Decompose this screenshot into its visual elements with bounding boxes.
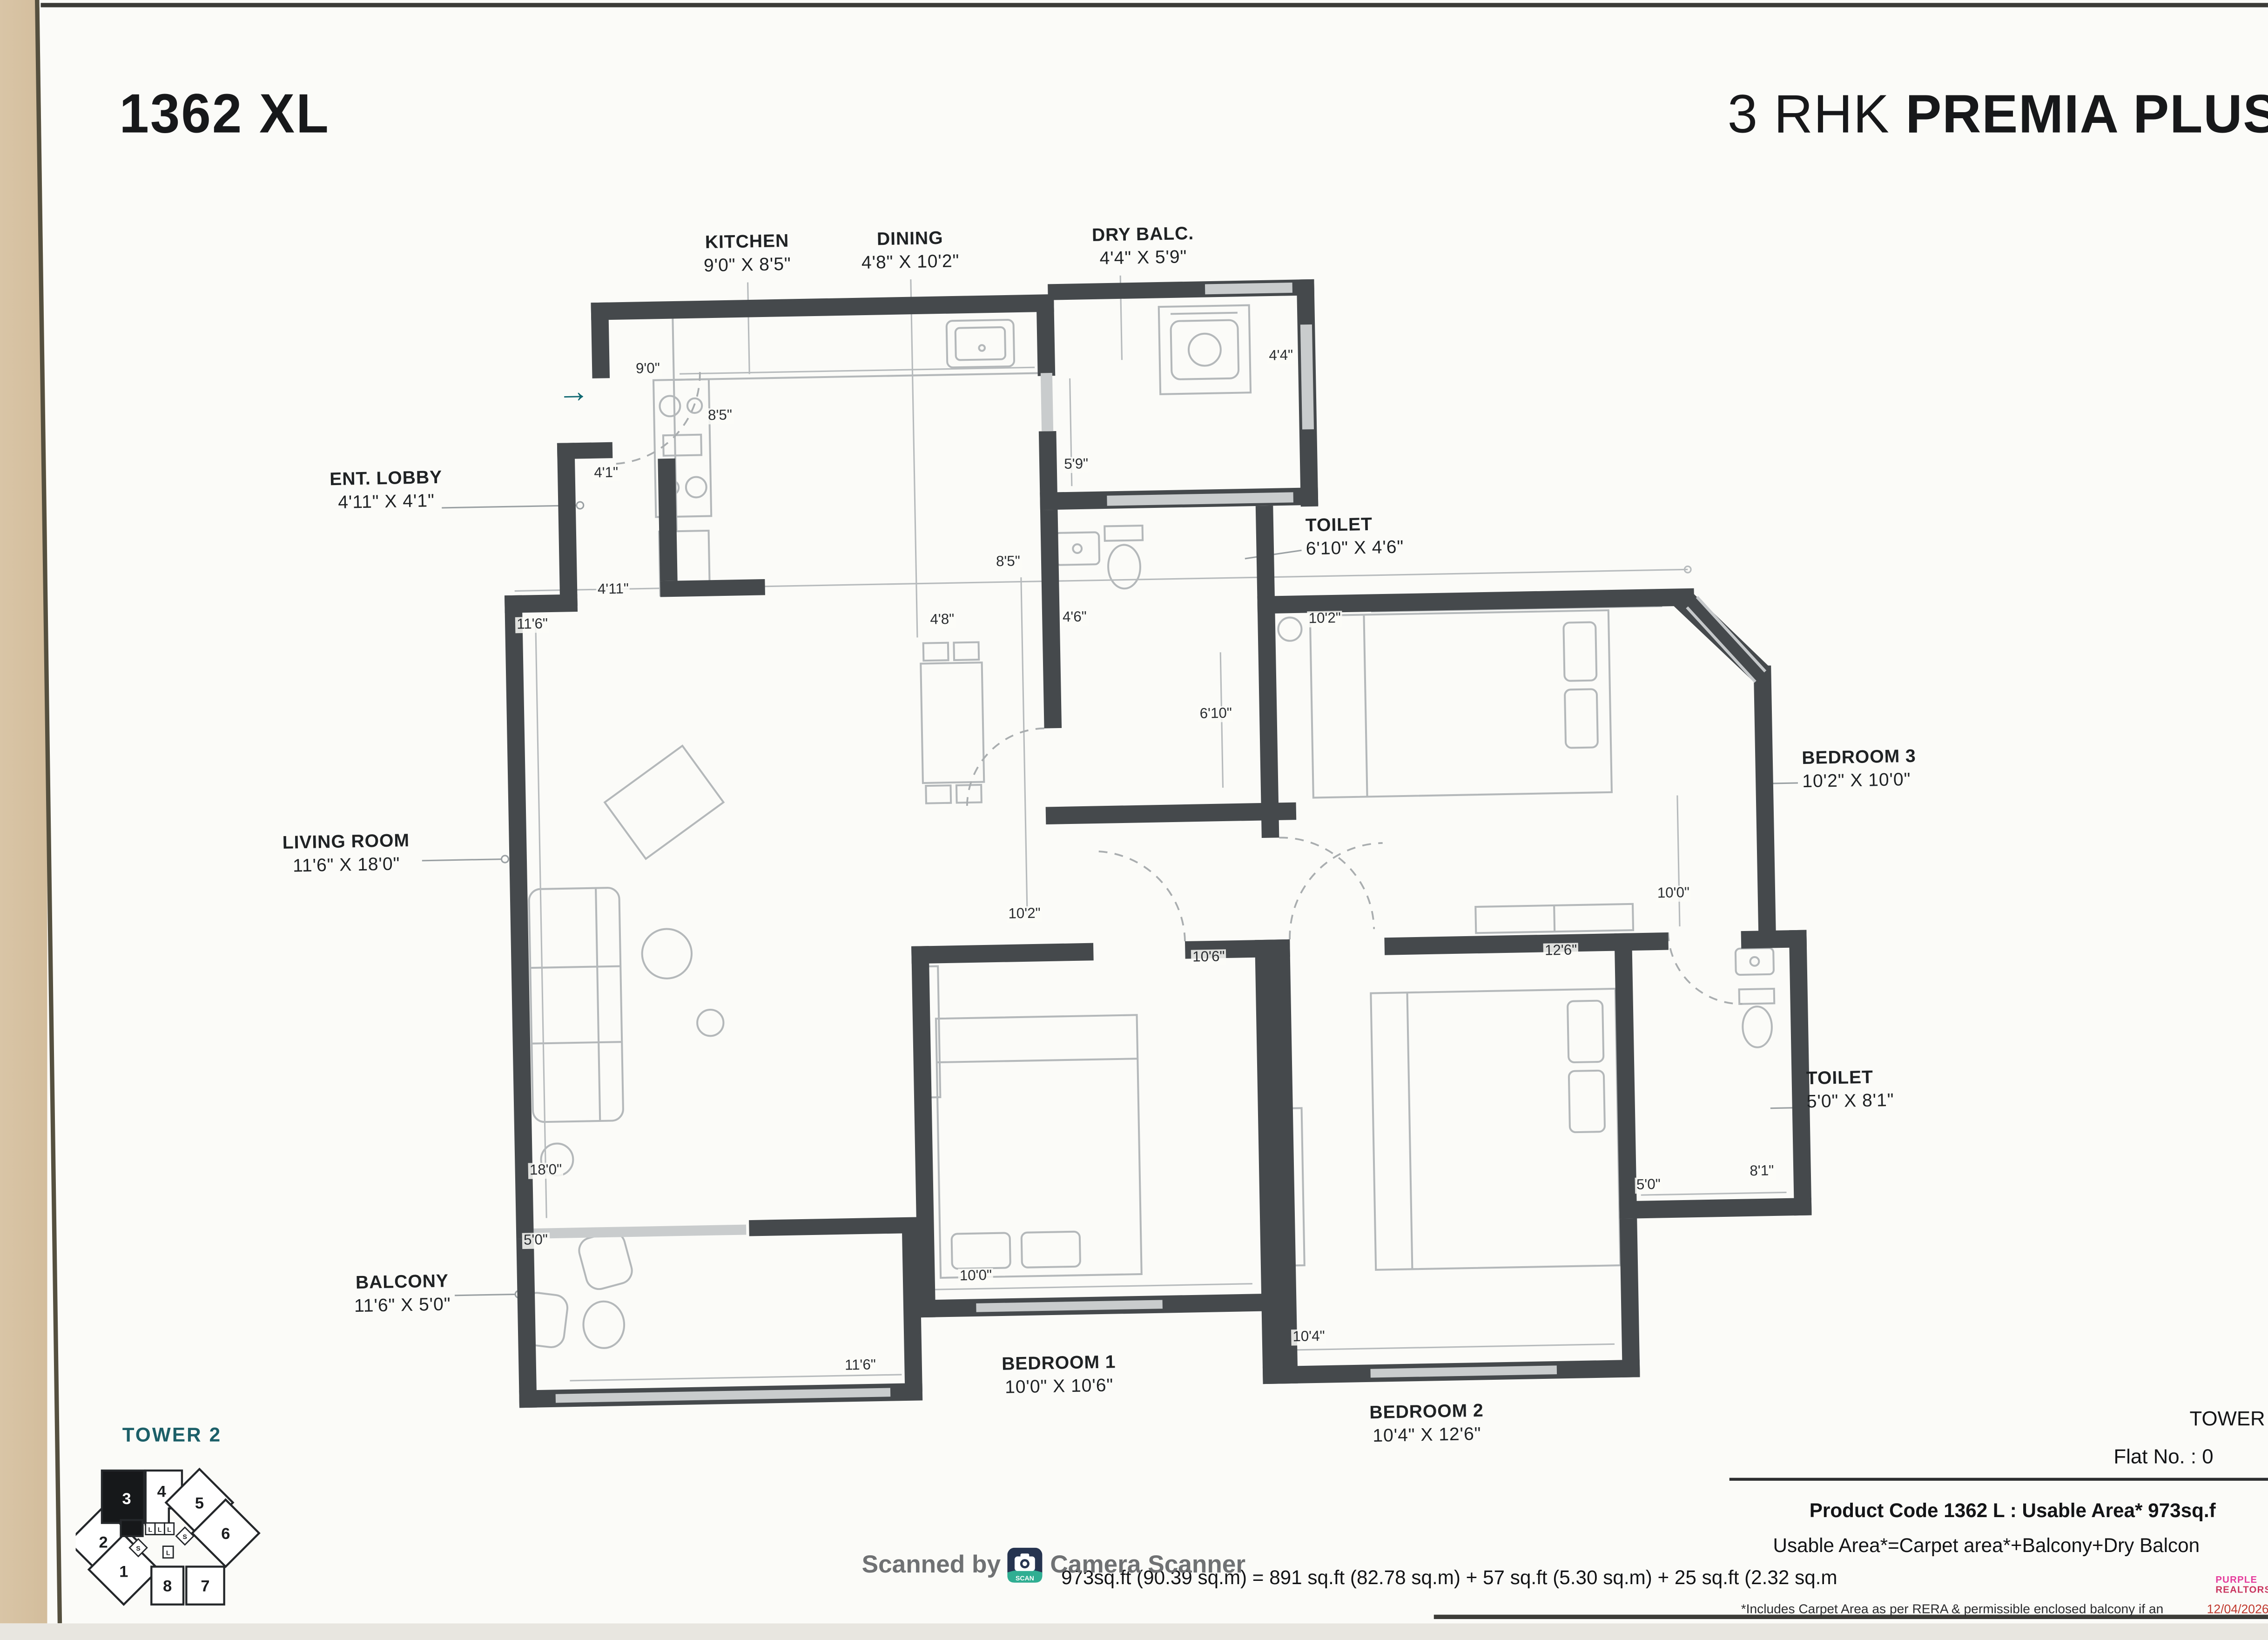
entry-arrow-icon: → bbox=[557, 372, 590, 411]
tv-console bbox=[605, 746, 723, 859]
dining-table bbox=[920, 642, 984, 803]
room-dims: 10'4" X 12'6" bbox=[1354, 1422, 1500, 1448]
dim-label: 10'4" bbox=[1291, 1329, 1326, 1346]
dim-label: 5'0" bbox=[522, 1233, 550, 1249]
keyplan-lift-label: L bbox=[167, 1525, 171, 1533]
keyplan-unit-number: 5 bbox=[195, 1494, 204, 1512]
balcony-table bbox=[583, 1301, 625, 1349]
dim-label: 4'11" bbox=[596, 581, 631, 598]
room-dims: 5'0" X 8'1" bbox=[1806, 1088, 1929, 1114]
wc-bowl bbox=[1108, 545, 1141, 589]
kitchen-slider bbox=[1041, 373, 1053, 432]
bedroom2-door-arc bbox=[1288, 843, 1384, 939]
keyplan-unit-number: 8 bbox=[163, 1578, 172, 1595]
room-label-kitchen: KITCHEN 9'0" X 8'5" bbox=[674, 229, 821, 278]
room-label-dry-balcony: DRY BALC. 4'4" X 5'9" bbox=[1067, 221, 1219, 270]
keyplan-title: TOWER 2 bbox=[122, 1424, 222, 1446]
room-dims: 11'6" X 18'0" bbox=[272, 852, 421, 878]
footer-divider bbox=[1730, 1478, 2268, 1481]
dim-label: 18'0" bbox=[528, 1162, 564, 1179]
dim-label: 12'6" bbox=[1543, 943, 1579, 959]
dim-label: 10'0" bbox=[958, 1268, 993, 1285]
room-name: BEDROOM 1 bbox=[986, 1350, 1132, 1376]
dim-label: 11'6" bbox=[843, 1357, 878, 1374]
kitchen-counter bbox=[653, 312, 1042, 595]
realtor-logo-line1: PURPLE bbox=[2215, 1575, 2268, 1586]
side-table bbox=[1278, 617, 1302, 641]
dim-label: 5'9" bbox=[1063, 457, 1090, 473]
dim-label: 10'2" bbox=[1007, 906, 1042, 923]
room-label-balcony: BALCONY 11'6" X 5'0" bbox=[329, 1269, 476, 1318]
balcony-slider bbox=[533, 1225, 746, 1239]
walls bbox=[499, 270, 1815, 1408]
keyplan-lift-label: L bbox=[148, 1525, 152, 1533]
room-label-bedroom2: BEDROOM 2 10'4" X 12'6" bbox=[1353, 1398, 1500, 1448]
keyplan-unit-number: 3 bbox=[122, 1490, 131, 1508]
dim-label: 5'0" bbox=[1635, 1177, 1662, 1194]
keyplan-unit-number: 4 bbox=[157, 1483, 166, 1500]
realtor-logo-line2: REALTORS bbox=[2215, 1586, 2268, 1596]
toilet2-door-arc bbox=[1668, 931, 1742, 1005]
room-dims: 4'11" X 4'1" bbox=[299, 488, 474, 515]
dim-label: 10'6" bbox=[1191, 949, 1226, 966]
drybalc-window bbox=[1205, 283, 1292, 294]
footer-product-code: Product Code 1362 L : Usable Area* 973sq… bbox=[1810, 1500, 2268, 1522]
keyplan-lift-label: L bbox=[158, 1525, 162, 1533]
dim-label: 4'1" bbox=[592, 465, 620, 481]
toilet2-fixtures bbox=[1736, 948, 1775, 1047]
bedroom1-furniture bbox=[917, 963, 1141, 1278]
drybalc-side-window bbox=[1300, 324, 1314, 430]
room-name: TOILET bbox=[1305, 512, 1436, 537]
room-dims: 4'8" X 10'2" bbox=[837, 249, 983, 275]
room-label-toilet1: TOILET 6'10" X 4'6" bbox=[1305, 512, 1437, 560]
dim-label: 6'10" bbox=[1198, 706, 1233, 723]
dim-label: 4'6" bbox=[1061, 610, 1089, 626]
room-dims: 10'2" X 10'0" bbox=[1802, 767, 1939, 793]
dim-label: 9'0" bbox=[634, 361, 662, 378]
scanned-floorplan-page: 1362 XL 3 RHK PREMIA PLUS bbox=[0, 0, 2268, 1623]
room-dims: 6'10" X 4'6" bbox=[1306, 535, 1437, 560]
keyplan-unit-number: 1 bbox=[119, 1563, 128, 1580]
dim-label: 4'4" bbox=[1267, 348, 1295, 364]
scan-badge-text: SCAN bbox=[1016, 1574, 1035, 1582]
keyplan-unit-number: 2 bbox=[99, 1534, 108, 1552]
room-name: ENT. LOBBY bbox=[298, 465, 473, 492]
room-label-ent-lobby: ENT. LOBBY 4'11" X 4'1" bbox=[298, 465, 474, 515]
room-dims: 11'6" X 5'0" bbox=[330, 1292, 476, 1318]
washbasin bbox=[1736, 948, 1774, 975]
room-label-dining: DINING 4'8" X 10'2" bbox=[837, 226, 983, 275]
coffee-table bbox=[642, 929, 692, 979]
keyplan-stair-label: S bbox=[183, 1533, 187, 1540]
bedroom2-furniture bbox=[1279, 989, 1620, 1271]
keyplan-unit-number: 7 bbox=[201, 1578, 209, 1595]
keyplan-lift-label: L bbox=[166, 1549, 170, 1556]
scan-date: 12/04/2026 bbox=[2207, 1601, 2268, 1616]
room-label-bedroom1: BEDROOM 1 10'0" X 10'6" bbox=[986, 1350, 1132, 1399]
room-name: TOILET bbox=[1806, 1065, 1929, 1090]
bedroom1-door-arc bbox=[1091, 850, 1185, 943]
room-name: BEDROOM 3 bbox=[1802, 744, 1939, 769]
living-furniture bbox=[526, 745, 730, 1176]
washbasin bbox=[1055, 532, 1099, 565]
wc-bowl bbox=[1743, 1006, 1772, 1048]
dim-label: 4'8" bbox=[929, 612, 956, 628]
footer-tower: TOWER bbox=[2140, 1406, 2265, 1430]
keyplan-stair-label: S bbox=[136, 1545, 140, 1552]
wc-tank bbox=[1104, 526, 1143, 541]
floor-plan: → KITCHEN 9'0" X 8'5" DINING 4'8" X 10'2… bbox=[0, 0, 2268, 1640]
keyplan-unit-number: 6 bbox=[221, 1525, 230, 1543]
room-label-toilet2: TOILET 5'0" X 8'1" bbox=[1806, 1065, 1929, 1114]
washing-machine bbox=[1159, 305, 1251, 394]
room-name: DINING bbox=[837, 226, 983, 252]
scanner-watermark: Scanned by SCAN Camera Scanner bbox=[862, 1548, 1245, 1583]
room-dims: 4'4" X 5'9" bbox=[1067, 244, 1219, 270]
bedroom3-door-arc bbox=[1279, 836, 1374, 931]
realtor-logo: PURPLE REALTORS bbox=[2215, 1575, 2268, 1596]
room-name: LIVING ROOM bbox=[271, 829, 420, 855]
watermark-suffix: Camera Scanner bbox=[1050, 1551, 1245, 1580]
bedroom3-furniture bbox=[1278, 610, 1633, 937]
footer-usable-area-formula: Usable Area*=Carpet area*+Balcony+Dry Ba… bbox=[1773, 1535, 2268, 1557]
room-name: BALCONY bbox=[329, 1269, 475, 1295]
keyplan-unit-3-step bbox=[121, 1520, 143, 1536]
bed bbox=[936, 1015, 1142, 1278]
room-dims: 9'0" X 8'5" bbox=[674, 252, 821, 278]
balcony-chair bbox=[576, 1229, 635, 1292]
dim-label: 11'6" bbox=[515, 616, 550, 633]
room-name: BEDROOM 2 bbox=[1353, 1398, 1500, 1424]
dim-label: 8'5" bbox=[707, 408, 734, 424]
room-dims: 10'0" X 10'6" bbox=[986, 1373, 1132, 1399]
watermark-prefix: Scanned by bbox=[862, 1551, 1001, 1580]
windows-and-sliders bbox=[517, 278, 1557, 1403]
room-label-bedroom3: BEDROOM 3 10'2" X 10'0" bbox=[1802, 744, 1939, 793]
wc-tank bbox=[1739, 989, 1775, 1004]
dim-label: 10'0" bbox=[1656, 885, 1691, 902]
room-name: KITCHEN bbox=[674, 229, 820, 255]
camera-scanner-icon: SCAN bbox=[1008, 1548, 1043, 1583]
room-label-living-room: LIVING ROOM 11'6" X 18'0" bbox=[271, 829, 421, 878]
footer-disclaimer: *Includes Carpet Area as per RERA & perm… bbox=[1741, 1601, 2268, 1616]
footer-flat-no: Flat No. : 0 bbox=[2113, 1444, 2268, 1468]
dim-label: 8'5" bbox=[995, 554, 1022, 570]
toilet1-door-arc bbox=[966, 729, 1046, 809]
dim-label: 8'1" bbox=[1748, 1163, 1776, 1180]
room-name: DRY BALC. bbox=[1067, 221, 1219, 247]
dim-label: 10'2" bbox=[1307, 611, 1342, 628]
bed bbox=[1310, 610, 1612, 798]
keyplan: 2 1 3 4 5 6 8 7 L L L L S S bbox=[76, 1456, 352, 1619]
